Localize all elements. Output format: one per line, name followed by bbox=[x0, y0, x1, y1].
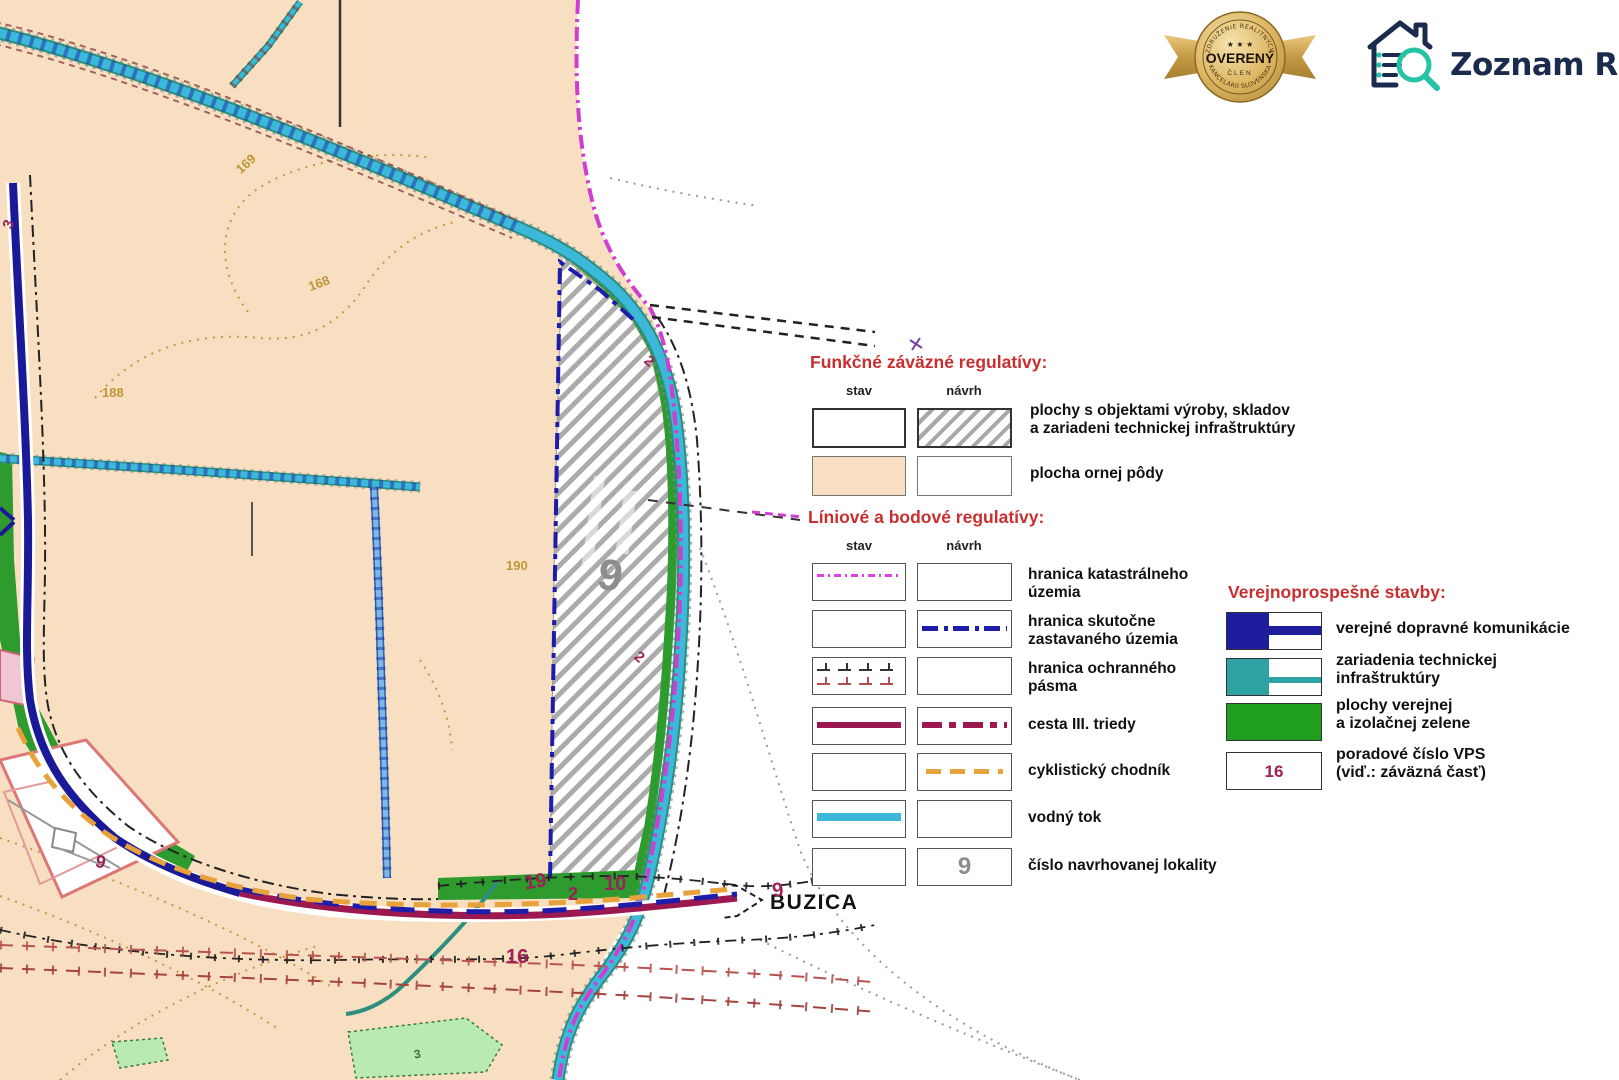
label-vps-technicka: zariadenia technickej infraštruktúry bbox=[1336, 652, 1497, 688]
swatch-skut-navrh bbox=[917, 610, 1012, 648]
label-orna: plocha ornej pôdy bbox=[1030, 465, 1163, 483]
swatch-vps-technicka bbox=[1226, 658, 1322, 696]
swatch-skut-stav bbox=[812, 610, 906, 648]
branding-header: ZDRUŽENIE REALITNÝCH KANCELÁRIÍ SLOVENSK… bbox=[1120, 5, 1619, 110]
label-kat: hranica katastrálneho územia bbox=[1028, 566, 1188, 602]
contour-190: 190 bbox=[506, 558, 528, 573]
overeny-badge: ZDRUŽENIE REALITNÝCH KANCELÁRIÍ SLOVENSK… bbox=[1164, 12, 1316, 102]
swatch-ochr-navrh bbox=[917, 657, 1012, 695]
swatch-orna-navrh bbox=[917, 456, 1012, 496]
zoznamrealit-logo: Zoznam Realít SK bbox=[1370, 23, 1619, 88]
map-number-2-road: 2 bbox=[568, 884, 578, 904]
zoning-map: BUZICA 9 19 2 10 9 16 9 3 2 2 3 169 168 … bbox=[0, 0, 1619, 1080]
swatch-vps-doprava bbox=[1226, 612, 1322, 650]
label-vps-doprava: verejné dopravné komunikácie bbox=[1336, 620, 1570, 638]
label-vps-cislo: poradové číslo VPS (viď.: záväzná časť) bbox=[1336, 746, 1486, 782]
double-dash-boundary bbox=[650, 305, 875, 346]
badge-member: ČLEN bbox=[1227, 68, 1252, 77]
map-number-10: 10 bbox=[604, 873, 626, 895]
label-ochr: hranica ochranného pásma bbox=[1028, 660, 1176, 696]
zoning-plan-page: { "branding": { "badge": { "arc_top": "Z… bbox=[0, 0, 1619, 1080]
logo-brand-text: Zoznam Realít bbox=[1450, 47, 1619, 83]
swatch-voda-stav bbox=[812, 800, 906, 838]
swatch-kat-navrh bbox=[917, 563, 1012, 601]
contour-188: 188 bbox=[102, 385, 124, 400]
functional-legend-title: Funkčné záväzné regulatívy: bbox=[810, 352, 1047, 373]
swatch-cislo-navrh: 9 bbox=[917, 848, 1012, 886]
swatch-cyklo-stav bbox=[812, 753, 906, 791]
swatch-cislo-stav bbox=[812, 848, 906, 886]
swatch-orna-stav bbox=[812, 456, 906, 496]
swatch-vyroba-stav bbox=[812, 408, 906, 448]
label-cesta: cesta III. triedy bbox=[1028, 716, 1136, 734]
swatch-kat-stav bbox=[812, 563, 906, 601]
label-vps-zelen: plochy verejnej a izolačnej zelene bbox=[1336, 697, 1470, 733]
swatch-vps-cislo: 16 bbox=[1226, 752, 1322, 790]
public-works-title: Verejnoprospešné stavby: bbox=[1228, 582, 1446, 603]
label-cislo: číslo navrhovanej lokality bbox=[1028, 857, 1217, 875]
linear-legend-title: Líniové a bodové regulatívy: bbox=[808, 507, 1044, 528]
label-voda: vodný tok bbox=[1028, 809, 1101, 827]
map-number-16: 16 bbox=[506, 946, 528, 968]
functional-col-navrh: návrh bbox=[917, 383, 1011, 398]
swatch-ochr-stav bbox=[812, 657, 906, 695]
map-number-9-road: 9 bbox=[771, 879, 786, 903]
map-number-19: 19 bbox=[523, 869, 548, 894]
swatch-voda-navrh bbox=[917, 800, 1012, 838]
swatch-cesta-navrh bbox=[917, 707, 1012, 745]
swatch-vps-zelen bbox=[1226, 703, 1322, 741]
label-cyklo: cyklistický chodník bbox=[1028, 762, 1170, 780]
badge-stars: ★ ★ ★ bbox=[1227, 40, 1254, 49]
functional-col-stav: stav bbox=[812, 383, 906, 398]
swatch-vyroba-navrh bbox=[917, 408, 1012, 448]
linear-col-stav: stav bbox=[812, 538, 906, 553]
swatch-cyklo-navrh bbox=[917, 753, 1012, 791]
linear-col-navrh: návrh bbox=[917, 538, 1011, 553]
label-vyroba: plochy s objektami výroby, skladov a zar… bbox=[1030, 402, 1295, 438]
swatch-cesta-stav bbox=[812, 707, 906, 745]
badge-title: OVERENÝ bbox=[1206, 49, 1275, 66]
label-skut: hranica skutočne zastavaného územia bbox=[1028, 613, 1178, 649]
